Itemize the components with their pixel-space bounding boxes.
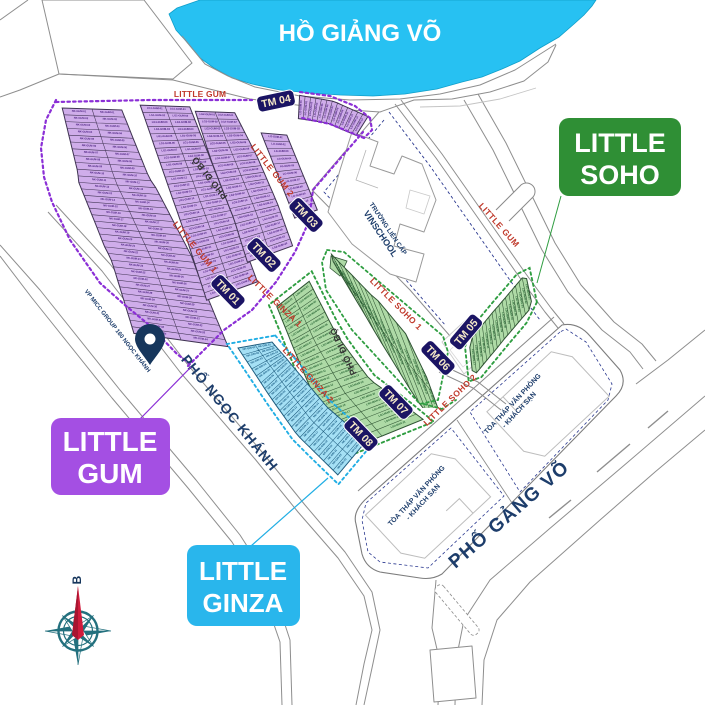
svg-text:LITTLE GUM: LITTLE GUM — [174, 89, 226, 99]
svg-text:LG1-GUM-05: LG1-GUM-05 — [157, 134, 173, 138]
svg-text:NK-GUM-09: NK-GUM-09 — [120, 166, 135, 171]
svg-text:NK-GUM-01: NK-GUM-01 — [72, 109, 87, 114]
svg-text:LG1-GUM-04: LG1-GUM-04 — [178, 127, 194, 131]
svg-text:LG2-GUM-05: LG2-GUM-05 — [210, 141, 226, 146]
svg-text:LG2-GUM-01: LG2-GUM-01 — [199, 112, 215, 117]
svg-text:LG1-GUM-04: LG1-GUM-04 — [154, 127, 170, 131]
svg-text:NK-GUM-08: NK-GUM-08 — [118, 159, 133, 164]
svg-text:LG2-GUM-02: LG2-GUM-02 — [221, 120, 237, 124]
svg-text:GINZA: GINZA — [203, 588, 284, 618]
svg-text:NK-GUM-03: NK-GUM-03 — [76, 122, 91, 127]
svg-text:LG-GUM-02: LG-GUM-02 — [271, 142, 286, 147]
svg-text:NK-GUM-09: NK-GUM-09 — [88, 164, 103, 169]
svg-text:LG2-GUM-01: LG2-GUM-01 — [218, 113, 234, 118]
svg-text:HỒ GIẢNG VÕ: HỒ GIẢNG VÕ — [279, 18, 442, 47]
svg-text:LG2-GUM-03: LG2-GUM-03 — [224, 127, 240, 131]
svg-text:LG1-GUM-03: LG1-GUM-03 — [152, 120, 168, 124]
svg-text:NK-GUM-04: NK-GUM-04 — [78, 129, 93, 134]
svg-text:NK-GUM-07: NK-GUM-07 — [115, 152, 130, 157]
svg-text:NK-GUM-05: NK-GUM-05 — [80, 136, 95, 141]
svg-text:SOHO: SOHO — [580, 160, 660, 190]
svg-text:LITTLE: LITTLE — [63, 426, 158, 457]
svg-text:NK-GUM-05: NK-GUM-05 — [110, 138, 125, 143]
svg-text:LG2-GUM-03: LG2-GUM-03 — [205, 127, 221, 131]
svg-text:LG1-GUM-01: LG1-GUM-01 — [170, 107, 186, 112]
svg-text:B: B — [70, 575, 84, 584]
svg-text:LG2-GUM-05: LG2-GUM-05 — [230, 140, 246, 145]
svg-text:LG1-GUM-06: LG1-GUM-06 — [183, 140, 199, 145]
svg-text:NK-GUM-04: NK-GUM-04 — [108, 131, 123, 136]
svg-text:NK-GUM-06: NK-GUM-06 — [113, 145, 128, 150]
svg-text:NK-GUM-02: NK-GUM-02 — [74, 116, 89, 121]
svg-text:NK-GUM-07: NK-GUM-07 — [84, 150, 99, 155]
svg-text:LG1-GUM-02: LG1-GUM-02 — [149, 113, 165, 117]
svg-text:LG-GUM-01: LG-GUM-01 — [298, 100, 303, 115]
svg-text:LG2-GUM-02: LG2-GUM-02 — [202, 119, 218, 123]
svg-text:LG2-GUM-04: LG2-GUM-04 — [227, 133, 243, 137]
svg-text:LG-GUM-04: LG-GUM-04 — [277, 156, 292, 161]
svg-text:LG2-GUM-04: LG2-GUM-04 — [207, 134, 223, 138]
svg-text:NK-GUM-01: NK-GUM-01 — [100, 110, 115, 115]
svg-text:NK-GUM-03: NK-GUM-03 — [105, 124, 120, 129]
svg-text:LG1-GUM-02: LG1-GUM-02 — [173, 113, 189, 117]
svg-text:LG1-GUM-06: LG1-GUM-06 — [159, 141, 175, 146]
svg-text:LITTLE: LITTLE — [199, 556, 287, 586]
svg-text:NK-GUM-06: NK-GUM-06 — [82, 143, 97, 148]
svg-text:NK-GUM-02: NK-GUM-02 — [103, 117, 118, 122]
svg-text:LG1-GUM-05: LG1-GUM-05 — [180, 133, 196, 137]
svg-text:GUM: GUM — [77, 458, 142, 489]
svg-text:LG-GUM-03: LG-GUM-03 — [274, 149, 289, 153]
svg-text:NK-GUM-08: NK-GUM-08 — [86, 157, 101, 162]
svg-text:LG1-GUM-01: LG1-GUM-01 — [147, 106, 163, 111]
svg-text:LITTLE: LITTLE — [574, 128, 665, 158]
svg-text:LG1-GUM-03: LG1-GUM-03 — [175, 120, 191, 124]
